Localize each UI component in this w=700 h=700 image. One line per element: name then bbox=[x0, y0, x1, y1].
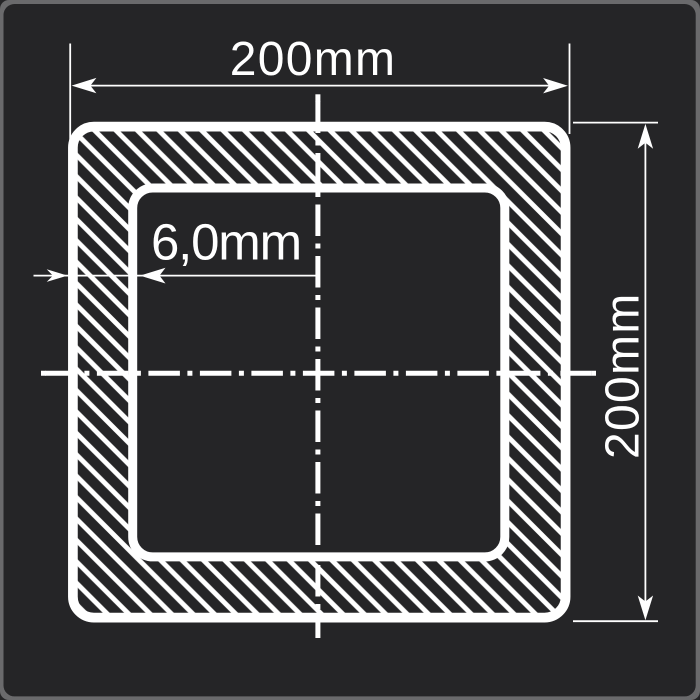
svg-text:6,0mm: 6,0mm bbox=[151, 214, 301, 271]
svg-text:200mm: 200mm bbox=[230, 33, 397, 86]
svg-text:200mm: 200mm bbox=[597, 292, 650, 459]
